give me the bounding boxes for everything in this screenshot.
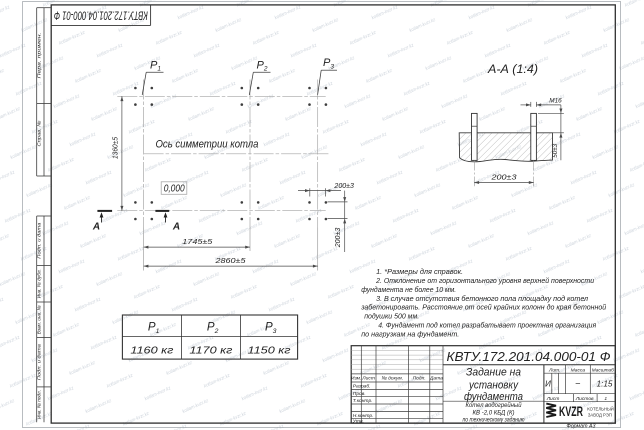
svg-text:2. Отклонение от горизонтально: 2. Отклонение от горизонтального уровня …	[375, 276, 595, 285]
svg-text:Листов: Листов	[575, 396, 594, 402]
svg-text:1:15: 1:15	[597, 380, 614, 389]
svg-text:Пров.: Пров.	[353, 391, 366, 397]
svg-text:200±3: 200±3	[333, 183, 354, 190]
svg-text:2860±5: 2860±5	[214, 258, 245, 265]
svg-text:Формат А3: Формат А3	[567, 423, 597, 429]
svg-text:200±3: 200±3	[490, 173, 516, 182]
svg-text:KVZR: KVZR	[559, 404, 583, 419]
svg-text:М16: М16	[549, 97, 562, 104]
svg-text:Справ. №: Справ. №	[37, 120, 42, 146]
svg-text:–: –	[575, 379, 581, 388]
svg-text:Инв. № подл.: Инв. № подл.	[37, 390, 42, 419]
svg-text:Н.контр.: Н.контр.	[353, 413, 374, 419]
svg-text:КВ -2,0 КБД (К): КВ -2,0 КБД (К)	[473, 409, 515, 416]
svg-text:Лист: Лист	[361, 376, 375, 382]
svg-text:КОТЕЛЬНЫЙ: КОТЕЛЬНЫЙ	[587, 405, 614, 412]
svg-text:по нагрузкам на фундамент.: по нагрузкам на фундамент.	[361, 329, 459, 338]
svg-text:0,000: 0,000	[164, 182, 185, 194]
svg-text:Изм.: Изм.	[351, 376, 361, 382]
svg-text:1: 1	[604, 396, 607, 402]
svg-text:3. В случае отсутствия бетонно: 3. В случае отсутствия бетонного пола пл…	[376, 294, 589, 303]
svg-text:Подп.: Подп.	[413, 376, 426, 382]
svg-text:установку: установку	[468, 379, 519, 391]
svg-text:подушки 500 мм.: подушки 500 мм.	[364, 312, 419, 321]
svg-text:Дата: Дата	[429, 376, 443, 382]
svg-text:Взам. инв. №: Взам. инв. №	[37, 305, 42, 334]
svg-text:Разраб.: Разраб.	[353, 384, 371, 390]
svg-text:Задание на: Задание на	[466, 367, 521, 379]
svg-text:A: A	[92, 222, 100, 233]
svg-text:А-А (1:4): А-А (1:4)	[487, 62, 538, 76]
svg-text:Котел водогрейный: Котел водогрейный	[466, 401, 522, 409]
svg-text:Лист: Лист	[546, 396, 560, 402]
svg-text:1160 кг: 1160 кг	[130, 345, 173, 357]
svg-text:A: A	[172, 222, 180, 233]
svg-text:Лит.: Лит.	[548, 367, 560, 373]
svg-text:1745±5: 1745±5	[182, 239, 212, 246]
svg-text:1360±5: 1360±5	[113, 137, 120, 159]
svg-text:ЗАВОД РЭП: ЗАВОД РЭП	[588, 412, 612, 417]
svg-text:КВТУ.172.201.04.000-01 Ф: КВТУ.172.201.04.000-01 Ф	[54, 9, 148, 23]
svg-text:1. *Размеры для справок.: 1. *Размеры для справок.	[376, 267, 463, 276]
svg-text:Ось симметрии котла: Ось симметрии котла	[156, 139, 259, 151]
svg-text:Подп. и дата: Подп. и дата	[37, 222, 42, 259]
svg-text:Утв.: Утв.	[353, 418, 364, 424]
svg-text:забетонировать. Расстояние от: забетонировать. Расстояние от осей крайн…	[360, 303, 607, 312]
svg-text:Инв. № дубл.: Инв. № дубл.	[37, 269, 42, 298]
svg-text:фундамента не более 10 мм.: фундамента не более 10 мм.	[361, 285, 456, 294]
svg-text:1170 кг: 1170 кг	[189, 345, 232, 357]
svg-text:50±3: 50±3	[552, 144, 559, 158]
svg-text:4. Фундамент под котел разраба: 4. Фундамент под котел разрабатывает про…	[378, 321, 596, 330]
svg-text:Подп. и дата: Подп. и дата	[37, 344, 42, 381]
svg-text:И: И	[545, 380, 551, 389]
svg-text:Т.контр.: Т.контр.	[353, 398, 373, 404]
svg-text:200±3: 200±3	[335, 228, 342, 249]
svg-text:Перв. примен.: Перв. примен.	[37, 33, 42, 79]
svg-text:№ докум.: № докум.	[382, 376, 404, 382]
svg-text:Масса: Масса	[571, 367, 586, 373]
svg-text:Масштаб: Масштаб	[592, 367, 614, 373]
svg-text:по техническому заданию: по техническому заданию	[463, 416, 525, 424]
svg-text:КВТУ.172.201.04.000-01 Ф: КВТУ.172.201.04.000-01 Ф	[447, 349, 611, 364]
svg-text:1150 кг: 1150 кг	[248, 345, 291, 357]
